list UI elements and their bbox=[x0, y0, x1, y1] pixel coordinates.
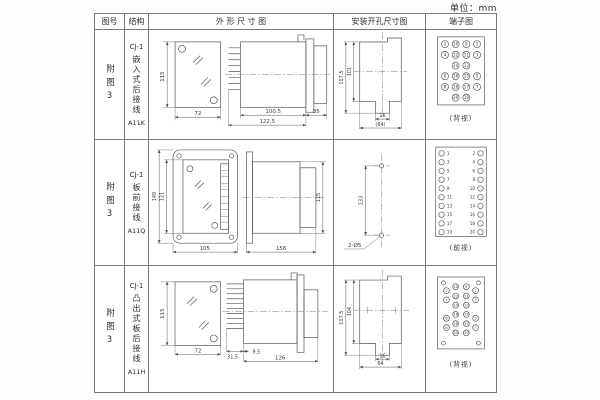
terminal-cell-row2: 1234567891011121314151617181920 (前视) bbox=[426, 140, 497, 266]
svg-text:20: 20 bbox=[453, 331, 458, 335]
svg-text:14: 14 bbox=[453, 304, 458, 308]
figure-no-cell-row3: 附图3 bbox=[95, 266, 125, 393]
install-cell-row1: 107.5 101 16 (64) bbox=[334, 30, 426, 140]
figure-no-cell-row2: 附图3 bbox=[95, 140, 125, 266]
svg-text:8: 8 bbox=[444, 84, 447, 89]
svg-text:4: 4 bbox=[444, 52, 447, 57]
model-series-row2: CJ-1 bbox=[130, 171, 144, 179]
svg-text:9: 9 bbox=[465, 285, 468, 289]
svg-text:17: 17 bbox=[464, 322, 469, 326]
datasheet-page: 单位：mm 图号 结构 外 形 尺 寸 图 安装开孔尺寸图 端子图 附图3 CJ… bbox=[0, 0, 600, 400]
svg-text:7: 7 bbox=[447, 177, 450, 182]
svg-text:7: 7 bbox=[476, 84, 479, 89]
dim-front-width: 72 bbox=[194, 111, 201, 117]
svg-text:16: 16 bbox=[453, 313, 458, 317]
svg-text:8: 8 bbox=[445, 326, 448, 330]
outline-cell-row2: 149 121 105 156 115 bbox=[149, 140, 334, 266]
structure-row1: 嵌入式后接线 bbox=[131, 55, 142, 115]
outline-drawing-a11q: 149 121 105 156 115 bbox=[149, 140, 333, 265]
svg-text:20: 20 bbox=[453, 95, 459, 100]
svg-text:14: 14 bbox=[453, 63, 459, 68]
dim-pin-length: 31.5 bbox=[227, 354, 238, 360]
model-series-row3: CJ-1 bbox=[130, 282, 144, 290]
svg-text:18: 18 bbox=[453, 322, 458, 326]
svg-text:10: 10 bbox=[453, 42, 459, 47]
svg-text:10: 10 bbox=[470, 186, 476, 191]
svg-text:19: 19 bbox=[447, 230, 453, 235]
dim-body-length: 100.5 bbox=[265, 109, 281, 115]
dim-slot-width: 16 bbox=[379, 354, 385, 360]
dim-front-height: 115 bbox=[160, 308, 166, 318]
svg-text:14: 14 bbox=[470, 203, 476, 208]
outline-drawing-a11h: 115 72 31.5 9.5 126 bbox=[149, 266, 333, 392]
svg-text:1: 1 bbox=[476, 42, 479, 47]
terminal-diagram-rear-a11k: 2109141211314136161558181772019 (背视) bbox=[426, 30, 496, 139]
install-cell-row3: 107.5 104 16 64 bbox=[334, 266, 426, 393]
svg-text:16: 16 bbox=[470, 212, 476, 217]
svg-text:7: 7 bbox=[474, 326, 477, 330]
svg-text:17: 17 bbox=[464, 84, 470, 89]
header-outline: 外 形 尺 寸 图 bbox=[149, 14, 334, 30]
dim-front-outer-h: 149 bbox=[152, 192, 158, 201]
view-label-row3: (背视) bbox=[450, 359, 473, 368]
label-holes: 2-Ø5 bbox=[348, 242, 361, 249]
svg-text:1: 1 bbox=[447, 151, 450, 156]
dim-cutout-width: (64) bbox=[375, 122, 385, 128]
model-code-row1: A11K bbox=[128, 119, 145, 127]
svg-text:11: 11 bbox=[464, 294, 469, 298]
svg-text:16: 16 bbox=[453, 74, 459, 79]
header-structure: 结构 bbox=[125, 14, 149, 30]
svg-text:4: 4 bbox=[472, 160, 475, 165]
view-label-row2: (前视) bbox=[450, 243, 473, 252]
svg-text:13: 13 bbox=[464, 63, 470, 68]
dim-side-length: 156 bbox=[276, 246, 287, 252]
svg-text:6: 6 bbox=[445, 317, 448, 321]
svg-text:3: 3 bbox=[474, 298, 477, 302]
svg-text:2: 2 bbox=[472, 151, 475, 156]
dim-front-height: 115 bbox=[160, 71, 166, 81]
svg-text:1: 1 bbox=[474, 289, 476, 293]
dim-slot-width: 16 bbox=[379, 113, 385, 119]
svg-text:20: 20 bbox=[470, 230, 476, 235]
outline-drawing-a11k: 115 72 100.5 35 122.5 bbox=[149, 30, 333, 139]
outline-cell-row3: 115 72 31.5 9.5 126 bbox=[149, 266, 334, 393]
svg-text:6: 6 bbox=[444, 74, 447, 79]
model-series-row1: CJ-1 bbox=[130, 43, 144, 51]
dim-cutout-width: 64 bbox=[377, 361, 383, 367]
terminal-cell-row1: 2109141211314136161558181772019 (背视) bbox=[426, 30, 497, 140]
svg-text:5: 5 bbox=[474, 317, 477, 321]
svg-text:17: 17 bbox=[447, 221, 453, 226]
svg-text:5: 5 bbox=[476, 74, 479, 79]
install-drawing-a11k: 107.5 101 16 (64) bbox=[334, 30, 425, 139]
svg-text:4: 4 bbox=[445, 298, 448, 302]
install-drawing-a11h: 107.5 104 16 64 bbox=[334, 266, 425, 392]
dim-hole-pitch: 133 bbox=[359, 196, 365, 205]
svg-text:18: 18 bbox=[453, 84, 459, 89]
structure-row3: 凸出式板后接线 bbox=[131, 294, 142, 364]
structure-cell-row1: CJ-1 嵌入式后接线 A11K bbox=[125, 30, 149, 140]
figure-no-row2: 附图3 bbox=[104, 182, 116, 224]
terminal-diagram-front-a11q: 1234567891011121314151617181920 (前视) bbox=[426, 140, 496, 265]
svg-text:6: 6 bbox=[472, 168, 475, 173]
dim-side-height: 115 bbox=[316, 193, 322, 202]
dim-cutout-inner: 104 bbox=[347, 307, 353, 316]
figure-no-row3: 附图3 bbox=[104, 308, 116, 350]
model-code-row2: A11Q bbox=[128, 227, 146, 235]
svg-text:12: 12 bbox=[470, 195, 476, 200]
svg-text:9: 9 bbox=[447, 186, 450, 191]
svg-text:11: 11 bbox=[464, 52, 470, 57]
svg-text:5: 5 bbox=[447, 168, 450, 173]
svg-text:15: 15 bbox=[464, 74, 470, 79]
dim-gap: 9.5 bbox=[252, 349, 260, 355]
terminal-cell-row3: 2109141211314136161558181772019 (背视) bbox=[426, 266, 497, 393]
svg-text:13: 13 bbox=[464, 304, 469, 308]
dim-rear-length: 35 bbox=[313, 109, 320, 115]
svg-text:2: 2 bbox=[444, 42, 447, 47]
svg-text:9: 9 bbox=[465, 42, 468, 47]
svg-text:13: 13 bbox=[447, 203, 453, 208]
svg-text:15: 15 bbox=[447, 212, 453, 217]
dim-front-inner-h: 121 bbox=[160, 192, 166, 201]
structure-cell-row2: CJ-1 板前接线 A11Q bbox=[125, 140, 149, 266]
structure-row2: 板前接线 bbox=[131, 183, 142, 223]
dim-cutout-outer: 107.5 bbox=[339, 311, 345, 325]
dim-total-length: 122.5 bbox=[259, 119, 275, 125]
install-cell-row2: 133 2-Ø5 bbox=[334, 140, 426, 266]
structure-cell-row3: CJ-1 凸出式板后接线 A11H bbox=[125, 266, 149, 393]
svg-text:8: 8 bbox=[472, 177, 475, 182]
dim-front-width: 105 bbox=[200, 246, 210, 252]
dimension-table: 图号 结构 外 形 尺 寸 图 安装开孔尺寸图 端子图 附图3 CJ-1 嵌入式… bbox=[94, 13, 497, 393]
svg-text:18: 18 bbox=[470, 221, 476, 226]
dim-cutout-inner: 101 bbox=[347, 67, 353, 76]
terminal-diagram-rear-a11h: 2109141211314136161558181772019 (背视) bbox=[426, 266, 496, 392]
outline-cell-row1: 115 72 100.5 35 122.5 bbox=[149, 30, 334, 140]
svg-text:3: 3 bbox=[476, 52, 479, 57]
view-label-row1: (背视) bbox=[450, 113, 473, 122]
figure-no-cell-row1: 附图3 bbox=[95, 30, 125, 140]
figure-no-row1: 附图3 bbox=[104, 64, 116, 106]
svg-text:19: 19 bbox=[464, 331, 469, 335]
svg-text:3: 3 bbox=[447, 160, 450, 165]
header-figure-no: 图号 bbox=[95, 14, 125, 30]
svg-text:10: 10 bbox=[453, 285, 458, 289]
model-code-row3: A11H bbox=[128, 368, 146, 376]
svg-text:15: 15 bbox=[464, 313, 469, 317]
svg-text:19: 19 bbox=[464, 95, 470, 100]
header-terminal: 端子图 bbox=[426, 14, 497, 30]
dim-cutout-outer: 107.5 bbox=[339, 71, 345, 85]
dim-front-width: 72 bbox=[194, 348, 201, 354]
svg-text:2: 2 bbox=[445, 289, 447, 293]
install-drawing-a11q: 133 2-Ø5 bbox=[334, 140, 425, 265]
header-install: 安装开孔尺寸图 bbox=[334, 14, 426, 30]
svg-text:12: 12 bbox=[453, 294, 458, 298]
svg-text:11: 11 bbox=[447, 195, 453, 200]
svg-text:12: 12 bbox=[453, 52, 459, 57]
dim-side-length: 126 bbox=[275, 355, 286, 361]
